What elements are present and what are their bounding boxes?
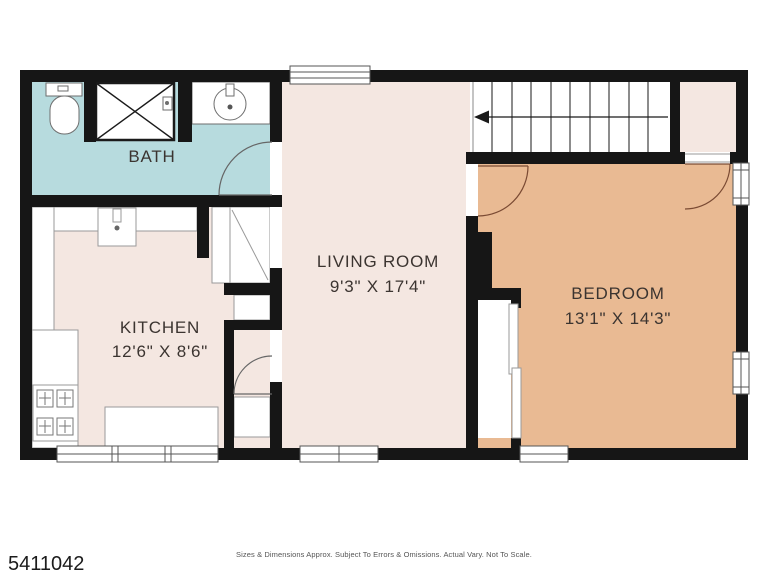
wall-segment [736, 70, 748, 460]
bedroom-dims: 13'1" X 14'3" [565, 309, 671, 328]
closet-a [212, 207, 270, 283]
window-right-bedroom-top [733, 163, 749, 205]
kitchen-label: KITCHEN [120, 318, 200, 337]
closet-b [234, 295, 270, 320]
wall-segment [466, 216, 478, 448]
living-room-label: LIVING ROOM [317, 252, 439, 271]
bath-label: BATH [128, 147, 175, 166]
closet-opening [270, 207, 282, 268]
wall-segment [730, 152, 748, 164]
wall-segment [84, 82, 96, 142]
wall-segment [20, 195, 282, 207]
wall-segment [20, 70, 32, 460]
bedroom-label: BEDROOM [571, 284, 664, 303]
wall-segment [224, 320, 282, 330]
kitchen-dims: 12'6" X 8'6" [112, 342, 208, 361]
stove-icon [33, 385, 78, 441]
living-room-dims: 9'3" X 17'4" [330, 277, 426, 296]
bedroom-closet-top-floor [673, 76, 742, 156]
wall-segment [670, 82, 680, 156]
wall-segment [197, 195, 209, 258]
wall-segment [270, 382, 282, 448]
wall-segment [224, 283, 282, 295]
wall-segment [20, 70, 748, 82]
floor-plan: BATH KITCHEN 12'6" X 8'6" LIVING ROOM 9'… [0, 0, 768, 576]
toilet-icon [46, 83, 82, 134]
sliding-closet [478, 300, 521, 438]
window-right-bedroom-bottom [733, 352, 749, 394]
window-bottom-living [300, 446, 378, 462]
footer: 5411042 Sizes & Dimensions Approx. Subje… [8, 550, 532, 575]
bath-door-opening [270, 142, 282, 195]
closet-interior [478, 300, 511, 438]
wall-segment [178, 82, 192, 142]
closet-c [234, 397, 270, 437]
disclaimer-text: Sizes & Dimensions Approx. Subject To Er… [236, 550, 532, 559]
kitchen-island [105, 407, 218, 446]
wall-segment [478, 288, 521, 300]
window-bottom-bedroom [520, 446, 568, 462]
wall-segment [270, 82, 282, 142]
listing-id: 5411042 [8, 553, 84, 575]
window-top-living [290, 66, 370, 84]
wall-segment [466, 152, 685, 164]
bedroom-door-opening [466, 164, 478, 216]
kitchen-sink-icon [98, 208, 136, 246]
window-bottom-kitchen [57, 446, 218, 462]
bath-sink-icon [192, 82, 270, 124]
shower-icon [96, 83, 174, 140]
floor-plan-page: BATH KITCHEN 12'6" X 8'6" LIVING ROOM 9'… [0, 0, 768, 576]
sliding-door-panel [512, 368, 521, 438]
sliding-door-panel [509, 304, 518, 374]
wall-segment [224, 330, 234, 448]
